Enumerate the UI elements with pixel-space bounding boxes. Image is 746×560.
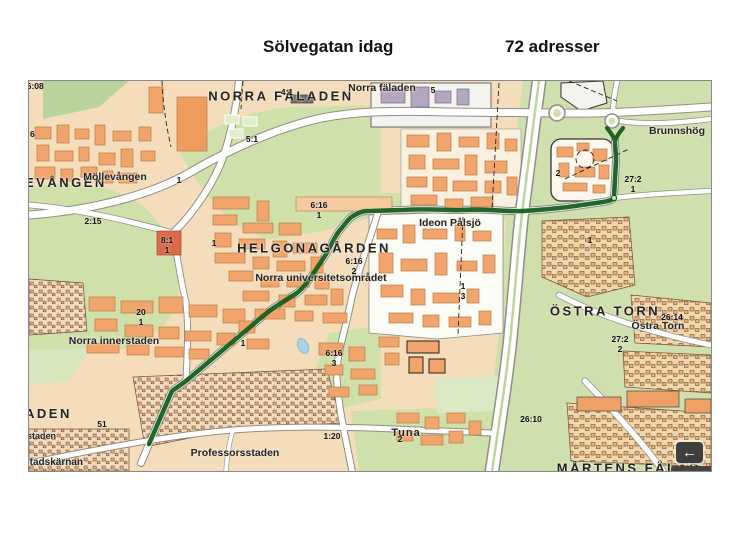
back-button[interactable]: ← (676, 442, 703, 463)
page-title: Sölvegatan idag (263, 37, 393, 57)
route-point-marker (611, 195, 616, 200)
slide-page: Sölvegatan idag 72 adresser (0, 0, 746, 560)
address-count: 72 adresser (505, 37, 600, 57)
map-attribution-strip (671, 466, 712, 472)
map-viewport[interactable]: NORRA FÄLADEN Norra fäladen Brunnshög HE… (28, 80, 712, 472)
map-canvas (29, 81, 711, 471)
back-arrow-icon: ← (682, 444, 697, 461)
